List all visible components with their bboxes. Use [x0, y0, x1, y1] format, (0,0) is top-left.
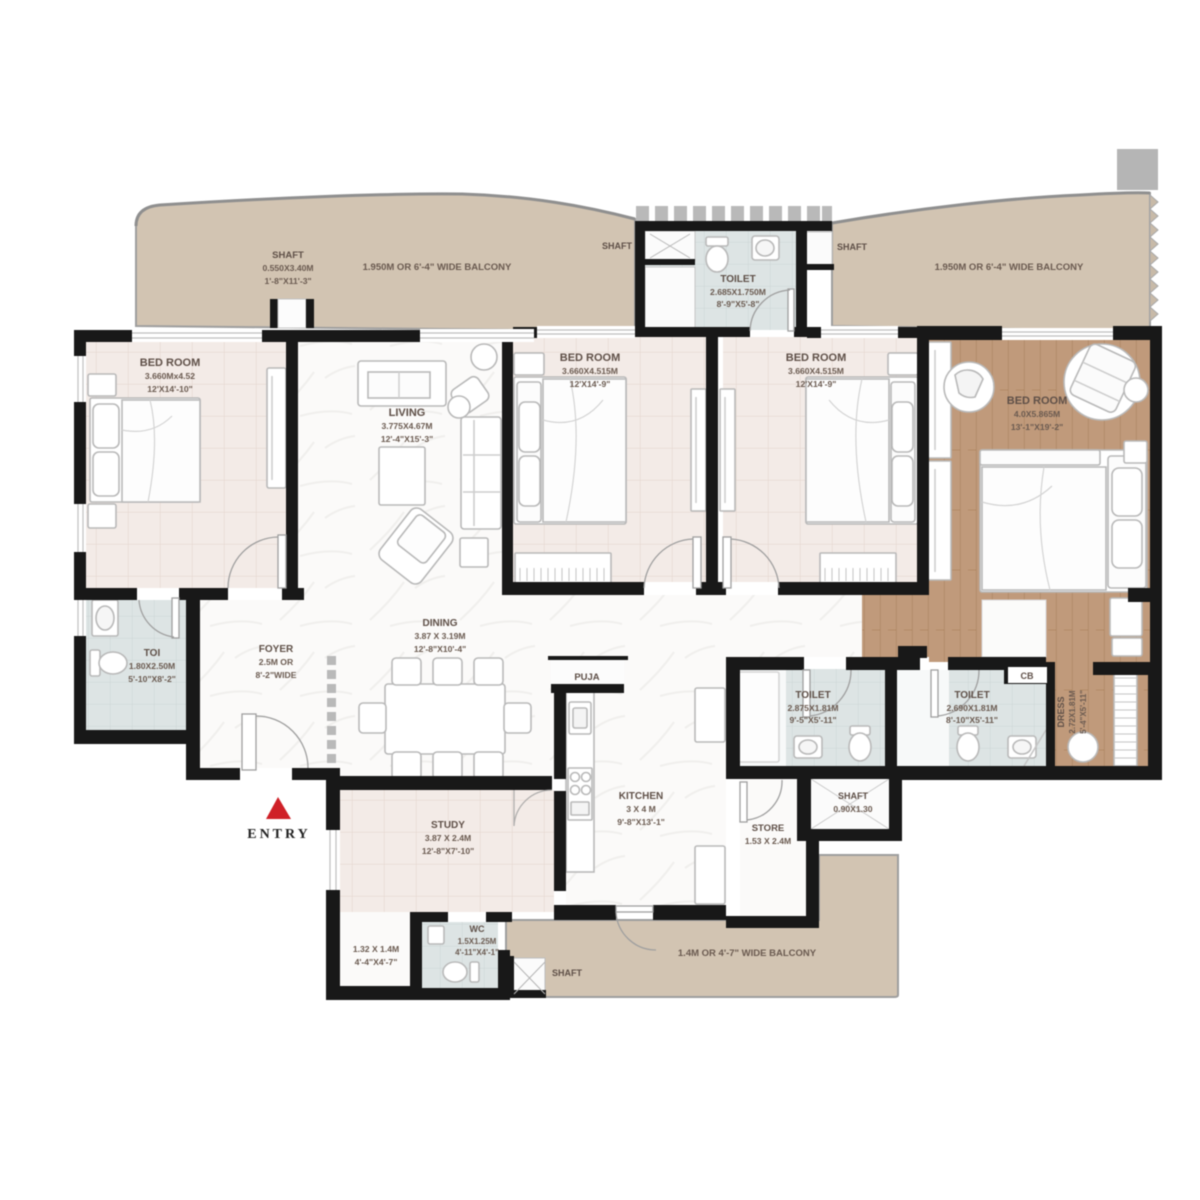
svg-text:8'-10"X5'-11": 8'-10"X5'-11" [946, 715, 998, 725]
svg-text:2.875X1.81M: 2.875X1.81M [787, 703, 838, 713]
svg-text:8'-2"WIDE: 8'-2"WIDE [256, 670, 297, 680]
svg-text:2.690X1.81M: 2.690X1.81M [946, 703, 997, 713]
svg-text:1.5X1.25M: 1.5X1.25M [458, 937, 497, 946]
svg-text:5'-4"X5'-11": 5'-4"X5'-11" [1079, 690, 1088, 734]
svg-text:12'X14'-10": 12'X14'-10" [147, 384, 192, 394]
svg-text:1'-8"X11'-3": 1'-8"X11'-3" [264, 276, 311, 286]
svg-text:TOI: TOI [144, 648, 161, 659]
svg-text:CB: CB [1021, 671, 1034, 681]
svg-text:12'-8"X10'-4": 12'-8"X10'-4" [414, 644, 466, 654]
svg-text:PUJA: PUJA [574, 672, 599, 683]
svg-text:TOILET: TOILET [954, 690, 989, 701]
svg-text:1.32 X 1.4M: 1.32 X 1.4M [353, 944, 399, 954]
svg-text:SHAFT: SHAFT [552, 968, 582, 978]
svg-text:9'-5"X5'-11": 9'-5"X5'-11" [789, 715, 836, 725]
svg-text:12'-4"X15'-3": 12'-4"X15'-3" [381, 434, 433, 444]
svg-text:1.950M OR 6'-4" WIDE BALCONY: 1.950M OR 6'-4" WIDE BALCONY [935, 262, 1084, 273]
svg-text:SHAFT: SHAFT [837, 242, 867, 252]
svg-text:9'-8"X13'-1": 9'-8"X13'-1" [617, 817, 665, 827]
svg-text:SHAFT: SHAFT [838, 791, 868, 801]
svg-text:STUDY: STUDY [431, 820, 465, 831]
svg-text:BED ROOM: BED ROOM [140, 357, 201, 369]
svg-text:KITCHEN: KITCHEN [619, 791, 663, 802]
svg-text:1.4M OR 4'-7" WIDE BALCONY: 1.4M OR 4'-7" WIDE BALCONY [678, 948, 817, 959]
svg-text:4.0X5.865M: 4.0X5.865M [1014, 409, 1060, 419]
svg-text:TOILET: TOILET [720, 274, 755, 285]
svg-text:LIVING: LIVING [389, 407, 426, 419]
svg-text:3.660Mx4.52: 3.660Mx4.52 [145, 371, 195, 381]
svg-text:WC: WC [470, 924, 485, 934]
svg-text:SHAFT: SHAFT [602, 241, 632, 251]
svg-text:2.685X1.750M: 2.685X1.750M [710, 287, 766, 297]
svg-text:BED ROOM: BED ROOM [786, 352, 847, 364]
svg-text:3.87 X 3.19M: 3.87 X 3.19M [414, 631, 465, 641]
svg-text:3 X 4 M: 3 X 4 M [626, 804, 656, 814]
svg-text:2.5M OR: 2.5M OR [259, 657, 294, 667]
svg-text:TOILET: TOILET [795, 690, 830, 701]
svg-text:3.660X4.515M: 3.660X4.515M [788, 366, 844, 376]
svg-text:DRESS: DRESS [1056, 696, 1066, 727]
svg-text:3.660X4.515M: 3.660X4.515M [562, 366, 618, 376]
svg-text:ENTRY: ENTRY [247, 827, 311, 842]
svg-text:3.87 X 2.4M: 3.87 X 2.4M [425, 833, 471, 843]
svg-text:0.550X3.40M: 0.550X3.40M [262, 263, 313, 273]
svg-text:2.72X1.81M: 2.72X1.81M [1068, 690, 1077, 733]
svg-text:BED ROOM: BED ROOM [560, 352, 621, 364]
svg-text:BED ROOM: BED ROOM [1007, 395, 1068, 407]
svg-text:12'X14'-9": 12'X14'-9" [796, 379, 837, 389]
svg-text:FOYER: FOYER [259, 644, 294, 655]
svg-text:SHAFT: SHAFT [272, 250, 304, 261]
svg-text:3.775X4.67M: 3.775X4.67M [381, 421, 432, 431]
svg-text:12'X14'-9": 12'X14'-9" [570, 379, 611, 389]
svg-text:4'-11"X4'-1": 4'-11"X4'-1" [455, 948, 499, 957]
svg-text:DINING: DINING [423, 618, 458, 629]
svg-text:12'-8"X7'-10": 12'-8"X7'-10" [422, 846, 474, 856]
svg-text:8'-9"X5'-8": 8'-9"X5'-8" [717, 299, 760, 309]
svg-text:13'-1"X19'-2": 13'-1"X19'-2" [1011, 422, 1063, 432]
svg-text:STORE: STORE [752, 823, 785, 834]
svg-text:5'-10"X8'-2": 5'-10"X8'-2" [128, 674, 176, 684]
svg-text:0.90X1.30: 0.90X1.30 [833, 804, 872, 814]
svg-text:4'-4"X4'-7": 4'-4"X4'-7" [355, 957, 398, 967]
svg-text:1.53 X 2.4M: 1.53 X 2.4M [745, 836, 791, 846]
svg-text:1.80X2.50M: 1.80X2.50M [129, 661, 175, 671]
svg-text:1.950M OR 6'-4" WIDE BALCONY: 1.950M OR 6'-4" WIDE BALCONY [363, 262, 512, 273]
